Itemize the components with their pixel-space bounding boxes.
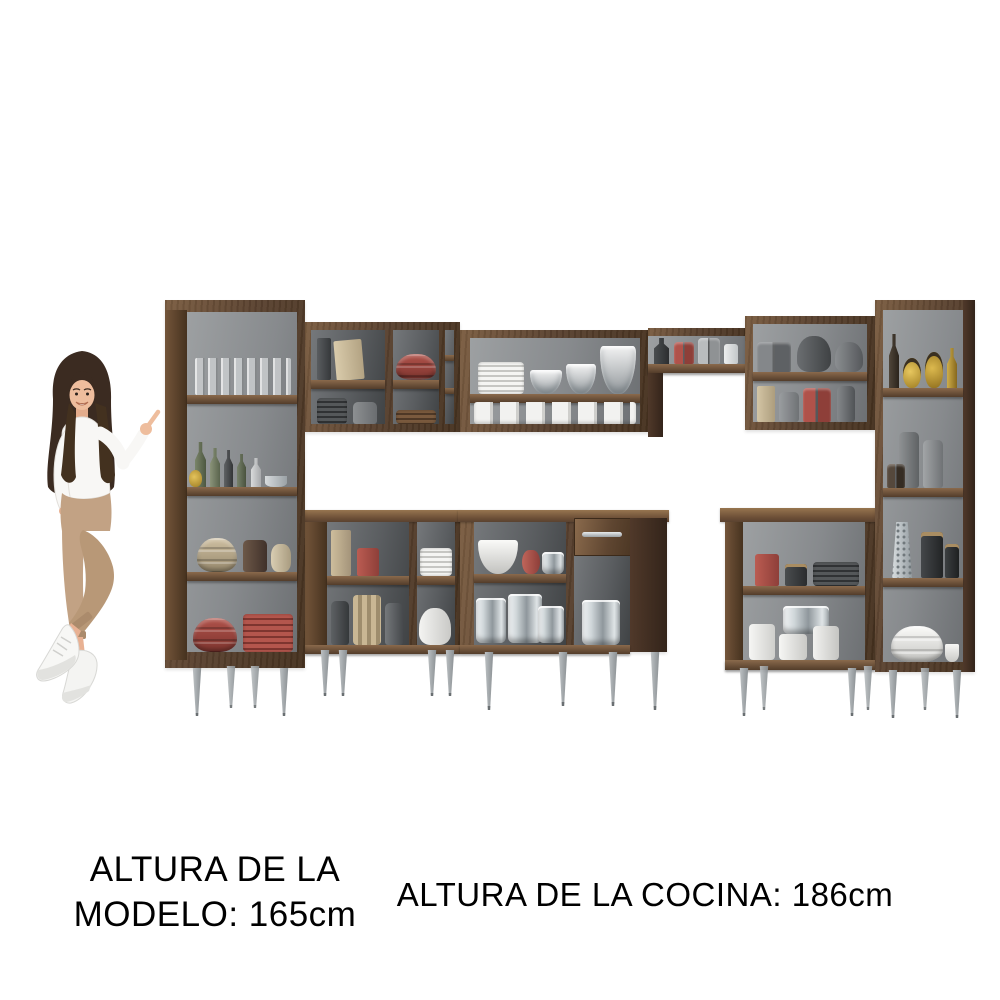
shelf: [187, 572, 297, 581]
dark-teapot: [797, 336, 831, 372]
cabinet-leg: [318, 650, 332, 696]
cabinet-leg: [224, 666, 238, 708]
gray-vase: [837, 386, 855, 422]
side-panel: [305, 522, 327, 650]
model-height-line2: MODELO: 165cm: [70, 893, 360, 938]
cabinet-leg: [336, 650, 350, 696]
cabinet-leg: [757, 666, 771, 710]
shelf: [883, 578, 963, 587]
gray-canister: [923, 440, 943, 488]
bridge-bottom: [648, 364, 745, 373]
kitchen-height-caption: ALTURA DE LA COCINA: 186cm: [395, 874, 895, 916]
small-steel-bowl: [265, 476, 287, 487]
white-canister: [779, 634, 807, 660]
drawer-handle: [582, 532, 622, 537]
countertop: [303, 510, 462, 522]
steel-pot: [508, 594, 542, 643]
white-cup: [724, 344, 738, 364]
red-canisters: [674, 342, 694, 364]
gray-teapot: [835, 342, 863, 372]
shelf: [327, 576, 409, 585]
steel-stock-pot: [582, 600, 620, 645]
dark-plate-stacks: [813, 562, 859, 586]
wooden-plate-stack: [396, 410, 436, 424]
upper-cabinet-right: [745, 316, 875, 430]
cabinet-leg: [845, 668, 859, 716]
red-pitcher: [522, 550, 540, 574]
upper-left-end-column: [445, 330, 454, 424]
gray-jars: [779, 392, 799, 422]
gray-canisters: [698, 338, 720, 364]
white-plate-stack: [478, 362, 524, 394]
white-canister: [813, 626, 839, 660]
drinking-glasses: [195, 358, 291, 395]
dark-book: [317, 338, 331, 380]
cabinet-leg: [425, 650, 439, 696]
side-panel: [165, 310, 187, 660]
cabinet-leg: [556, 652, 570, 706]
base-cabinet-drawer: [460, 510, 667, 652]
cabinet-leg: [950, 670, 964, 718]
brown-jars: [243, 540, 267, 572]
gray-cups: [353, 402, 377, 424]
cabinet-leg: [277, 668, 291, 716]
beige-bowl-stack: [197, 538, 237, 572]
white-bowl-stack: [891, 626, 943, 662]
red-canister: [357, 548, 379, 576]
dark-dish-stack: [317, 398, 347, 424]
red-plate-stack: [243, 614, 293, 652]
cream-pitcher: [271, 544, 291, 572]
bridge-side-panel: [648, 373, 663, 437]
shelf: [445, 388, 454, 394]
cabinet-leg: [443, 650, 457, 696]
countertop: [720, 508, 880, 522]
black-jar: [921, 532, 943, 578]
red-bowl-stack: [193, 618, 237, 652]
right-tall-pantry: [875, 300, 975, 672]
model-height-line1: ALTURA DE LA: [70, 848, 360, 893]
white-plate-stack: [420, 548, 452, 576]
cabinet-leg: [861, 666, 875, 710]
drawer-front: [574, 518, 632, 556]
white-teapot: [419, 608, 451, 645]
upper-cabinet-left: [305, 322, 460, 432]
base-cabinet-left: [305, 510, 460, 652]
side-panel: [725, 522, 743, 666]
red-canisters: [803, 388, 831, 422]
black-canister: [785, 564, 807, 586]
cabinet-leg: [648, 652, 662, 710]
dark-jar: [331, 601, 349, 645]
small-steel-pot: [542, 552, 564, 574]
cream-box: [757, 386, 775, 422]
model-height-caption: ALTURA DE LA MODELO: 165cm: [70, 848, 360, 938]
side-panel: [630, 518, 667, 652]
cabinet-leg: [482, 652, 496, 710]
amber-oil-cruet: [903, 358, 921, 388]
shelf: [187, 487, 297, 496]
shelf: [187, 395, 297, 404]
shelf: [474, 574, 566, 583]
base-cabinet-right: [725, 508, 875, 670]
shelf: [393, 380, 439, 389]
small-white-bowl: [945, 644, 959, 662]
steel-pot: [538, 606, 564, 643]
cabinet-leg: [918, 668, 932, 710]
upper-cabinet-middle: [460, 330, 650, 432]
cabinet-leg: [886, 670, 900, 718]
cream-wavy-vase: [353, 595, 381, 645]
amber-oil-cruet: [925, 352, 943, 388]
gray-mugs: [757, 342, 791, 372]
amber-jug: [189, 470, 202, 487]
red-canister: [755, 554, 779, 586]
cabinet-leg: [737, 668, 751, 716]
cabinet-leg: [606, 652, 620, 706]
white-cup-stacks: [474, 402, 636, 424]
shelf: [883, 488, 963, 497]
cream-boxes: [331, 530, 351, 576]
steel-pot: [476, 598, 506, 643]
gray-cylinder-vase: [385, 603, 403, 645]
bridge-shelf: [648, 328, 745, 373]
shelf: [883, 388, 963, 397]
shelf: [311, 380, 385, 389]
white-canister: [749, 624, 775, 660]
black-jar: [945, 544, 959, 578]
left-tall-pantry: [165, 300, 305, 668]
shelf: [417, 576, 455, 585]
cream-folders: [333, 339, 364, 381]
shelf: [445, 355, 454, 361]
product-scene: ALTURA DE LA MODELO: 165cm ALTURA DE LA …: [0, 0, 1000, 1000]
side-panel: [963, 300, 975, 672]
red-bowl-stack: [396, 354, 436, 380]
cabinet-leg: [248, 666, 262, 708]
cabinet-leg: [190, 668, 204, 716]
small-dark-jars: [887, 464, 905, 488]
shelf: [743, 586, 865, 595]
shelf: [753, 372, 867, 381]
